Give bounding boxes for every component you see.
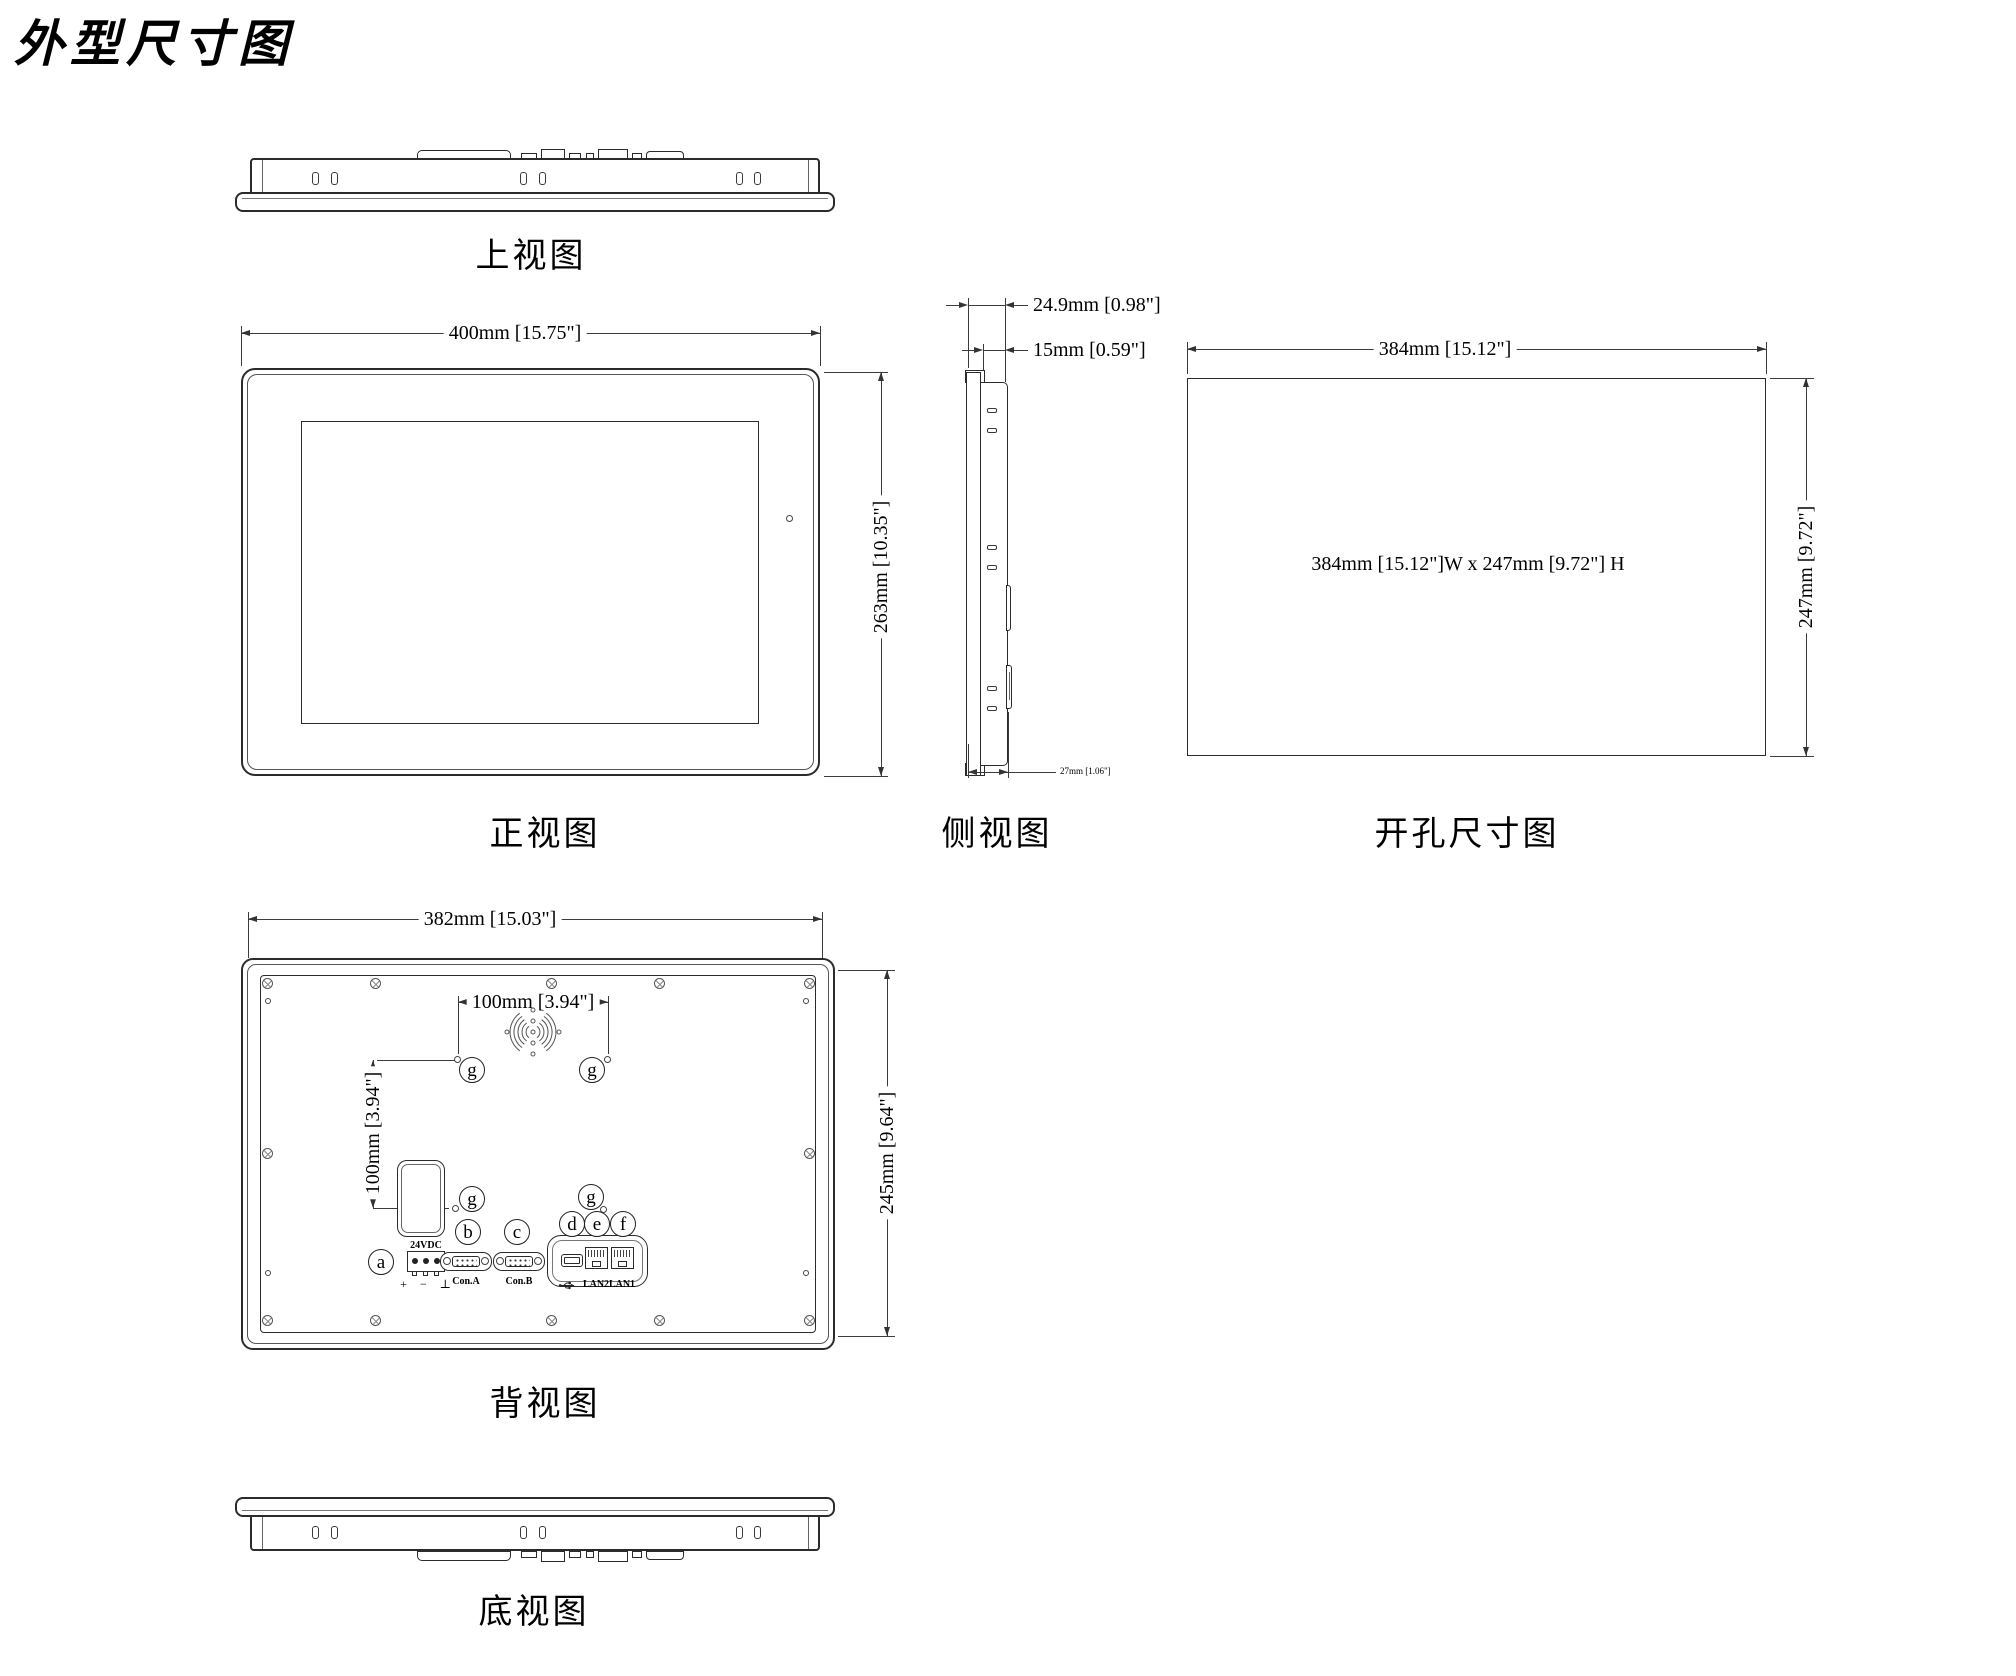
- vent-slot: [987, 545, 997, 550]
- arrowhead: [884, 1327, 890, 1336]
- top-view-edge-line: [808, 160, 809, 192]
- arrowhead: [813, 916, 822, 922]
- power-polarity-symbols: + − ⊥: [400, 1277, 456, 1292]
- pin-hole: [803, 998, 809, 1004]
- lan1-pins: [614, 1250, 631, 1257]
- extension-line: [608, 996, 609, 1054]
- lan2-clip: [592, 1261, 601, 1267]
- con-b-label: Con.B: [506, 1276, 533, 1287]
- vent-slot: [736, 172, 743, 185]
- side-view-label: 侧视图: [942, 806, 1053, 855]
- front-view-label: 正视图: [490, 806, 601, 855]
- terminal-pin: [423, 1258, 429, 1264]
- screw: [262, 978, 273, 989]
- vent-slot: [539, 1526, 546, 1539]
- arrowhead: [241, 330, 250, 336]
- screw: [546, 1315, 557, 1326]
- db9-screw: [534, 1257, 542, 1265]
- lan1-label: LAN1: [609, 1279, 635, 1290]
- db9-screw: [496, 1257, 504, 1265]
- extension-line: [1005, 298, 1006, 382]
- extension-line: [820, 326, 821, 366]
- rear-width-dim: 382mm [15.03"]: [419, 908, 562, 930]
- arrowhead: [1803, 378, 1809, 387]
- vent-slot: [736, 1526, 743, 1539]
- vesa-hole: [454, 1056, 461, 1063]
- bottom-view-connector-bump: [521, 1551, 537, 1558]
- screw: [804, 1148, 815, 1159]
- arrowhead: [248, 916, 257, 922]
- page-title: 外型尺寸图: [14, 4, 294, 76]
- vent-slot: [312, 1526, 319, 1539]
- arrowhead: [1005, 302, 1014, 308]
- arrowhead: [959, 302, 968, 308]
- dimension-line: [946, 305, 959, 306]
- vent-slot: [754, 1526, 761, 1539]
- bottom-view-bezel-line: [242, 1510, 828, 1511]
- terminal-stub: [434, 1271, 439, 1276]
- pin-hole: [803, 1270, 809, 1276]
- pin-hole: [265, 1270, 271, 1276]
- side-bezel-bar: [966, 372, 981, 776]
- side-mount-tab: [1006, 585, 1011, 631]
- callout-g: g: [459, 1186, 485, 1212]
- rear-view-label: 背视图: [490, 1376, 601, 1425]
- side-depth-dim: 24.9mm [0.98"]: [1030, 294, 1164, 316]
- extension-line: [1770, 756, 1814, 757]
- bottom-view-edge-line: [262, 1517, 263, 1549]
- bottom-view-edge-line: [808, 1517, 809, 1549]
- vesa-hole: [604, 1056, 611, 1063]
- front-width-dim: 400mm [15.75"]: [444, 322, 587, 344]
- vent-slot: [754, 172, 761, 185]
- rear-height-dim: 245mm [9.64"]: [876, 1087, 898, 1220]
- cutout-note: 384mm [15.12"]W x 247mm [9.72"] H: [1306, 553, 1629, 575]
- callout-g: g: [578, 1184, 604, 1210]
- arrowhead: [458, 999, 467, 1005]
- dimension-line: [962, 350, 974, 351]
- bottom-view-bezel: [235, 1497, 835, 1517]
- leader-line: [1014, 305, 1028, 306]
- callout-b: b: [455, 1219, 481, 1245]
- arrowhead: [884, 970, 890, 979]
- extension-line: [822, 912, 823, 958]
- extension-line: [1008, 712, 1009, 778]
- terminal-stub: [412, 1271, 417, 1276]
- vent-slot: [331, 1526, 338, 1539]
- vent-slot: [520, 1526, 527, 1539]
- pin-hole: [265, 998, 271, 1004]
- callout-g: g: [459, 1057, 485, 1083]
- cutout-height-dim: 247mm [9.72"]: [1795, 501, 1817, 634]
- outline-dimension-drawing: 外型尺寸图 上视图 400mm [15.75"]: [0, 0, 2016, 1676]
- bottom-view-connector-bump: [541, 1551, 565, 1562]
- screw: [546, 978, 557, 989]
- bottom-view-label: 底视图: [479, 1584, 590, 1633]
- terminal-pin: [412, 1258, 418, 1264]
- lan2-pins: [588, 1250, 605, 1257]
- db9-pins: [508, 1258, 530, 1266]
- side-bezel-depth-dim: 15mm [0.59"]: [1030, 339, 1149, 361]
- bottom-view-connector-bump: [569, 1551, 581, 1558]
- usb-tongue: [564, 1257, 580, 1264]
- vent-slot: [539, 172, 546, 185]
- front-height-dim: 263mm [10.35"]: [870, 496, 892, 639]
- dimension-line: [983, 350, 1005, 351]
- bottom-view-connector-bump: [586, 1551, 594, 1558]
- vent-slot: [987, 428, 997, 433]
- top-view-edge-line: [262, 160, 263, 192]
- screw: [262, 1148, 273, 1159]
- side-total-depth-dim: 27mm [1.06"]: [1058, 767, 1113, 777]
- lan1-clip: [618, 1261, 627, 1267]
- extension-line: [1766, 342, 1767, 374]
- vent-slot: [520, 172, 527, 185]
- con-a-label: Con.A: [452, 1276, 480, 1287]
- arrowhead: [1757, 346, 1766, 352]
- callout-e: e: [584, 1211, 610, 1237]
- top-view-bezel-line: [242, 198, 828, 199]
- screw: [804, 978, 815, 989]
- db9-pins: [455, 1258, 477, 1266]
- screw: [804, 1315, 815, 1326]
- arrowhead: [999, 769, 1008, 775]
- cutout-width-dim: 384mm [15.12"]: [1374, 338, 1517, 360]
- bottom-view-connector-bump: [598, 1551, 628, 1562]
- power-voltage-label: 24VDC: [410, 1240, 442, 1251]
- lan2-label: LAN2: [583, 1279, 609, 1290]
- side-connector-line: [1009, 672, 1010, 700]
- vent-slot: [312, 172, 319, 185]
- vent-slot: [987, 565, 997, 570]
- vent-slot: [987, 408, 997, 413]
- arrowhead: [811, 330, 820, 336]
- vesa-height-dim: 100mm [3.94"]: [362, 1067, 384, 1200]
- dimension-line: [968, 305, 1005, 306]
- extension-line: [968, 298, 969, 368]
- screw: [262, 1315, 273, 1326]
- front-led-hole: [786, 515, 793, 522]
- leader-line: [1008, 772, 1056, 773]
- db9-screw: [443, 1257, 451, 1265]
- usb-icon: [558, 1281, 576, 1290]
- screen-area: [301, 421, 759, 724]
- db9-screw: [481, 1257, 489, 1265]
- callout-g: g: [579, 1057, 605, 1083]
- leader-line: [1014, 350, 1028, 351]
- arrowhead: [599, 999, 608, 1005]
- callout-a: a: [368, 1249, 394, 1275]
- ground-hole: [452, 1205, 459, 1212]
- extension-line: [824, 776, 888, 777]
- screw: [654, 978, 665, 989]
- bottom-view-connector-bump: [632, 1551, 642, 1558]
- vent-slot: [331, 172, 338, 185]
- vent-slot: [987, 686, 997, 691]
- bottom-view-connector-bump: [646, 1551, 684, 1560]
- screw: [370, 1315, 381, 1326]
- arrowhead: [1187, 346, 1196, 352]
- callout-f: f: [610, 1211, 636, 1237]
- extension-line: [377, 1060, 455, 1061]
- screw: [654, 1315, 665, 1326]
- screw: [370, 978, 381, 989]
- top-view-bezel: [235, 192, 835, 212]
- top-view-label: 上视图: [476, 228, 587, 277]
- bottom-view-connector-bump: [417, 1551, 511, 1561]
- arrowhead: [878, 372, 884, 381]
- arrowhead: [1803, 747, 1809, 756]
- terminal-stub: [423, 1271, 428, 1276]
- callout-d: d: [559, 1211, 585, 1237]
- cutout-view-label: 开孔尺寸图: [1375, 806, 1560, 855]
- callout-c: c: [504, 1219, 530, 1245]
- battery-cover-inner: [401, 1164, 441, 1233]
- extension-line: [838, 1336, 895, 1337]
- vent-slot: [987, 706, 997, 711]
- arrowhead: [1005, 347, 1014, 353]
- arrowhead: [878, 767, 884, 776]
- speaker-grille: [501, 1004, 565, 1060]
- arrowhead: [974, 347, 983, 353]
- arrowhead: [370, 1199, 376, 1208]
